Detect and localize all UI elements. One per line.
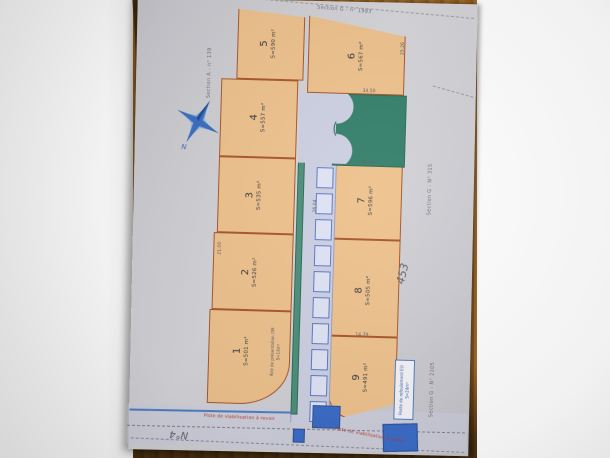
road-hatch-cell <box>312 323 330 344</box>
road-hatch-cell <box>310 375 328 396</box>
road-hatch-cell <box>313 271 331 292</box>
blue-utility-area <box>293 429 305 443</box>
aire-presentation-label: Aire de présentation OM S=14m² <box>269 327 281 376</box>
section-label-left: Section A - n° 139 <box>206 47 214 98</box>
parcel-4-label: 4 S=557 m² <box>249 102 267 132</box>
parcel-number: 2 <box>241 269 251 276</box>
parcel-7-label: 7 S=596 m² <box>357 186 375 216</box>
section-label-top: Section G - n° 1993 <box>317 5 372 15</box>
compass-north-label: N <box>181 143 186 151</box>
parcel-area: S=505 m² <box>365 276 372 306</box>
poste-refoulement-box: Poste de refoulement EU S=24m² <box>393 360 415 421</box>
parcel-3-label: 3 S=535 m² <box>245 180 263 210</box>
parcel-number: 4 <box>250 114 260 121</box>
parcel-area: S=535 m² <box>256 181 263 211</box>
poste-line2: S=24m² <box>404 382 409 399</box>
parcel-6-label: 6 S=567 m² <box>347 41 365 71</box>
handwritten-road-n4: N°4 <box>169 428 189 441</box>
parcel-area: S=557 m² <box>260 103 267 133</box>
parcel-number: 8 <box>355 287 365 294</box>
white-paper-left <box>0 0 133 458</box>
dimension-label: 50.50 <box>360 160 373 165</box>
parcel-number: 3 <box>245 192 255 199</box>
parcel-area: S=596 m² <box>368 186 375 216</box>
road-hatch-cell <box>314 245 332 266</box>
aire-line1: Aire de présentation OM <box>269 327 275 376</box>
subdivision-plan: N 1 S=501 m² 2 S=526 m² 3 S=535 m² 4 S=5… <box>126 0 479 458</box>
parcel-number: 7 <box>357 197 367 204</box>
parcel-1-label: 1 S=501 m² <box>232 336 250 366</box>
boundary-line-right <box>433 85 474 97</box>
aire-line2: S=14m² <box>276 344 281 361</box>
parcel-number: 6 <box>347 53 357 60</box>
dimension-label: 25.26 <box>401 42 406 55</box>
road-turnaround <box>298 93 372 165</box>
parcel-8-label: 8 S=505 m² <box>354 276 372 306</box>
parcel-area: S=590 m² <box>270 29 277 59</box>
road-hatch-cell <box>315 219 333 240</box>
parcel-5-label: 5 S=590 m² <box>259 29 277 59</box>
parcel-number: 1 <box>233 348 243 355</box>
parcel-area: S=526 m² <box>252 257 259 287</box>
dimension-label: 21.00 <box>218 242 223 255</box>
parcel-area: S=491 m² <box>363 363 370 393</box>
parcel-number: 9 <box>352 374 362 381</box>
white-paper-right <box>477 0 610 458</box>
road-hatch-cell <box>312 297 330 318</box>
road-hatch-cell <box>316 167 334 188</box>
parcel-number: 5 <box>260 40 270 47</box>
parcel-area: S=501 m² <box>243 336 250 366</box>
section-label-right-upper: Section G - N° 315 <box>426 163 434 215</box>
dimension-label: 34.50 <box>363 89 376 94</box>
dimension-label: 14.79 <box>355 333 368 338</box>
section-label-right-lower: Section G - N° 2105 <box>428 362 436 417</box>
blue-utility-area <box>312 405 341 429</box>
parcel-9-label: 9 S=491 m² <box>352 362 370 392</box>
plan-sheet: N 1 S=501 m² 2 S=526 m² 3 S=535 m² 4 S=5… <box>128 0 477 456</box>
parcel-2-label: 2 S=526 m² <box>241 257 259 287</box>
parcel-area: S=567 m² <box>358 42 365 72</box>
road-hatch-cell <box>311 349 329 370</box>
dimension-label: 26.04 <box>313 200 318 213</box>
